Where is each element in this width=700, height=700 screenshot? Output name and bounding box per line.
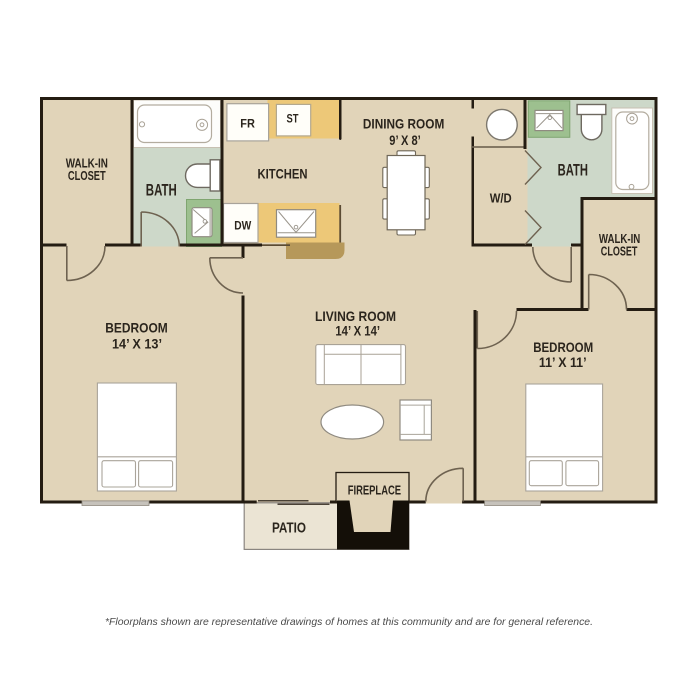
svg-text:FR: FR <box>240 119 255 131</box>
svg-text:W/D: W/D <box>490 192 512 206</box>
svg-text:9’ X 8’: 9’ X 8’ <box>389 133 420 148</box>
svg-text:ST: ST <box>287 114 299 126</box>
svg-text:FIREPLACE: FIREPLACE <box>348 483 401 497</box>
svg-text:11’ X 11’: 11’ X 11’ <box>539 355 587 370</box>
svg-text:14’ X 14’: 14’ X 14’ <box>335 323 380 338</box>
svg-text:KITCHEN: KITCHEN <box>258 166 308 182</box>
svg-text:LIVING ROOM: LIVING ROOM <box>315 308 396 324</box>
svg-text:BATH: BATH <box>146 182 177 200</box>
svg-text:CLOSET: CLOSET <box>601 243 638 258</box>
svg-text:BEDROOM: BEDROOM <box>105 319 168 335</box>
svg-text:14’ X 13’: 14’ X 13’ <box>112 337 162 352</box>
svg-text:DINING ROOM: DINING ROOM <box>363 116 444 132</box>
svg-text:DW: DW <box>234 221 251 233</box>
svg-text:BATH: BATH <box>558 162 588 180</box>
svg-text:*Floorplans shown are represen: *Floorplans shown are representative dra… <box>105 617 593 628</box>
svg-text:BEDROOM: BEDROOM <box>533 339 593 355</box>
svg-text:PATIO: PATIO <box>272 520 306 537</box>
svg-text:CLOSET: CLOSET <box>68 169 106 183</box>
